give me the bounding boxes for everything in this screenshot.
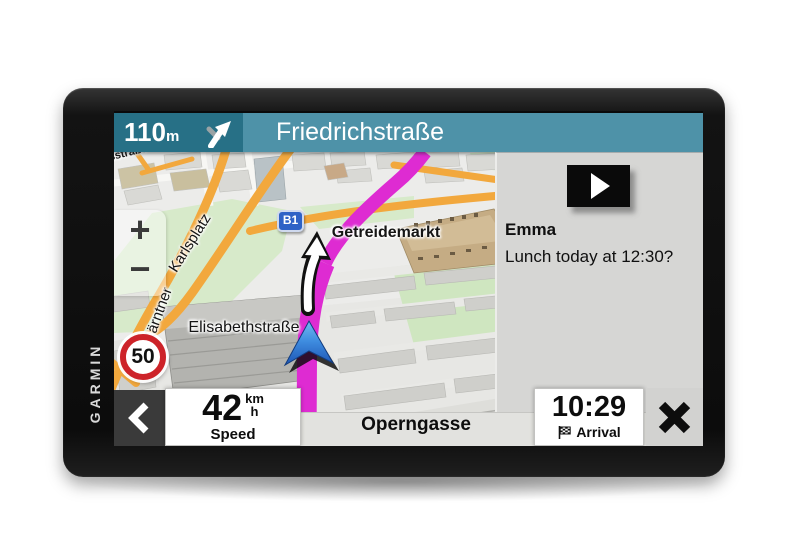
- map-label-getreidemarkt: Getreidemarkt: [332, 224, 441, 242]
- road-badge-b1: B1: [277, 210, 304, 232]
- speed-readout: 42 kmh: [166, 390, 300, 426]
- next-turn-distance: 110m: [124, 113, 179, 152]
- distance-unit: m: [166, 128, 179, 145]
- speed-unit: kmh: [245, 392, 264, 418]
- close-button[interactable]: [646, 388, 703, 446]
- navigation-bar[interactable]: 110m Friedrichstraße: [114, 113, 703, 152]
- next-street-name: Friedrichstraße: [276, 113, 444, 152]
- notification-message: Lunch today at 12:30?: [505, 247, 673, 267]
- play-icon: [567, 165, 630, 207]
- distance-value: 110: [124, 117, 166, 147]
- turn-direction-icon: [202, 118, 236, 148]
- arrival-widget[interactable]: 10:29 Arrival: [534, 388, 644, 446]
- checkered-flag-icon: [557, 425, 572, 440]
- screen-edge: [114, 111, 703, 113]
- arrival-caption: Arrival: [535, 424, 643, 440]
- garmin-logo: GARMIN: [87, 303, 107, 463]
- zoom-controls: + −: [114, 210, 166, 296]
- garmin-gps-device: GARMIN: [63, 88, 725, 477]
- zoom-in-button[interactable]: +: [114, 210, 166, 252]
- chevron-left-icon: [114, 390, 167, 446]
- product-photo-background: GARMIN: [0, 0, 800, 533]
- zoom-out-button[interactable]: −: [114, 252, 166, 294]
- arrival-time: 10:29: [535, 391, 643, 424]
- back-button[interactable]: [114, 390, 167, 446]
- speed-unit-bottom: h: [245, 405, 264, 418]
- play-message-button[interactable]: [567, 165, 630, 207]
- distance-box: 110m: [114, 113, 243, 152]
- speed-label: Speed: [166, 426, 300, 444]
- speed-limit-sign: 50: [120, 334, 166, 380]
- elisabeth-building: [162, 295, 314, 397]
- current-street-name: Operngasse: [361, 414, 471, 436]
- speed-value: 42: [202, 390, 242, 426]
- notification-sender: Emma: [505, 220, 556, 240]
- touchscreen[interactable]: sstraße Karlsplatz Kärntner Elisabethstr…: [114, 111, 703, 446]
- close-x-icon: [646, 388, 703, 446]
- map-label-elisabethstrasse: Elisabethstraße: [188, 319, 299, 337]
- arrival-label: Arrival: [576, 424, 620, 440]
- speed-widget[interactable]: 42 kmh Speed: [165, 388, 301, 446]
